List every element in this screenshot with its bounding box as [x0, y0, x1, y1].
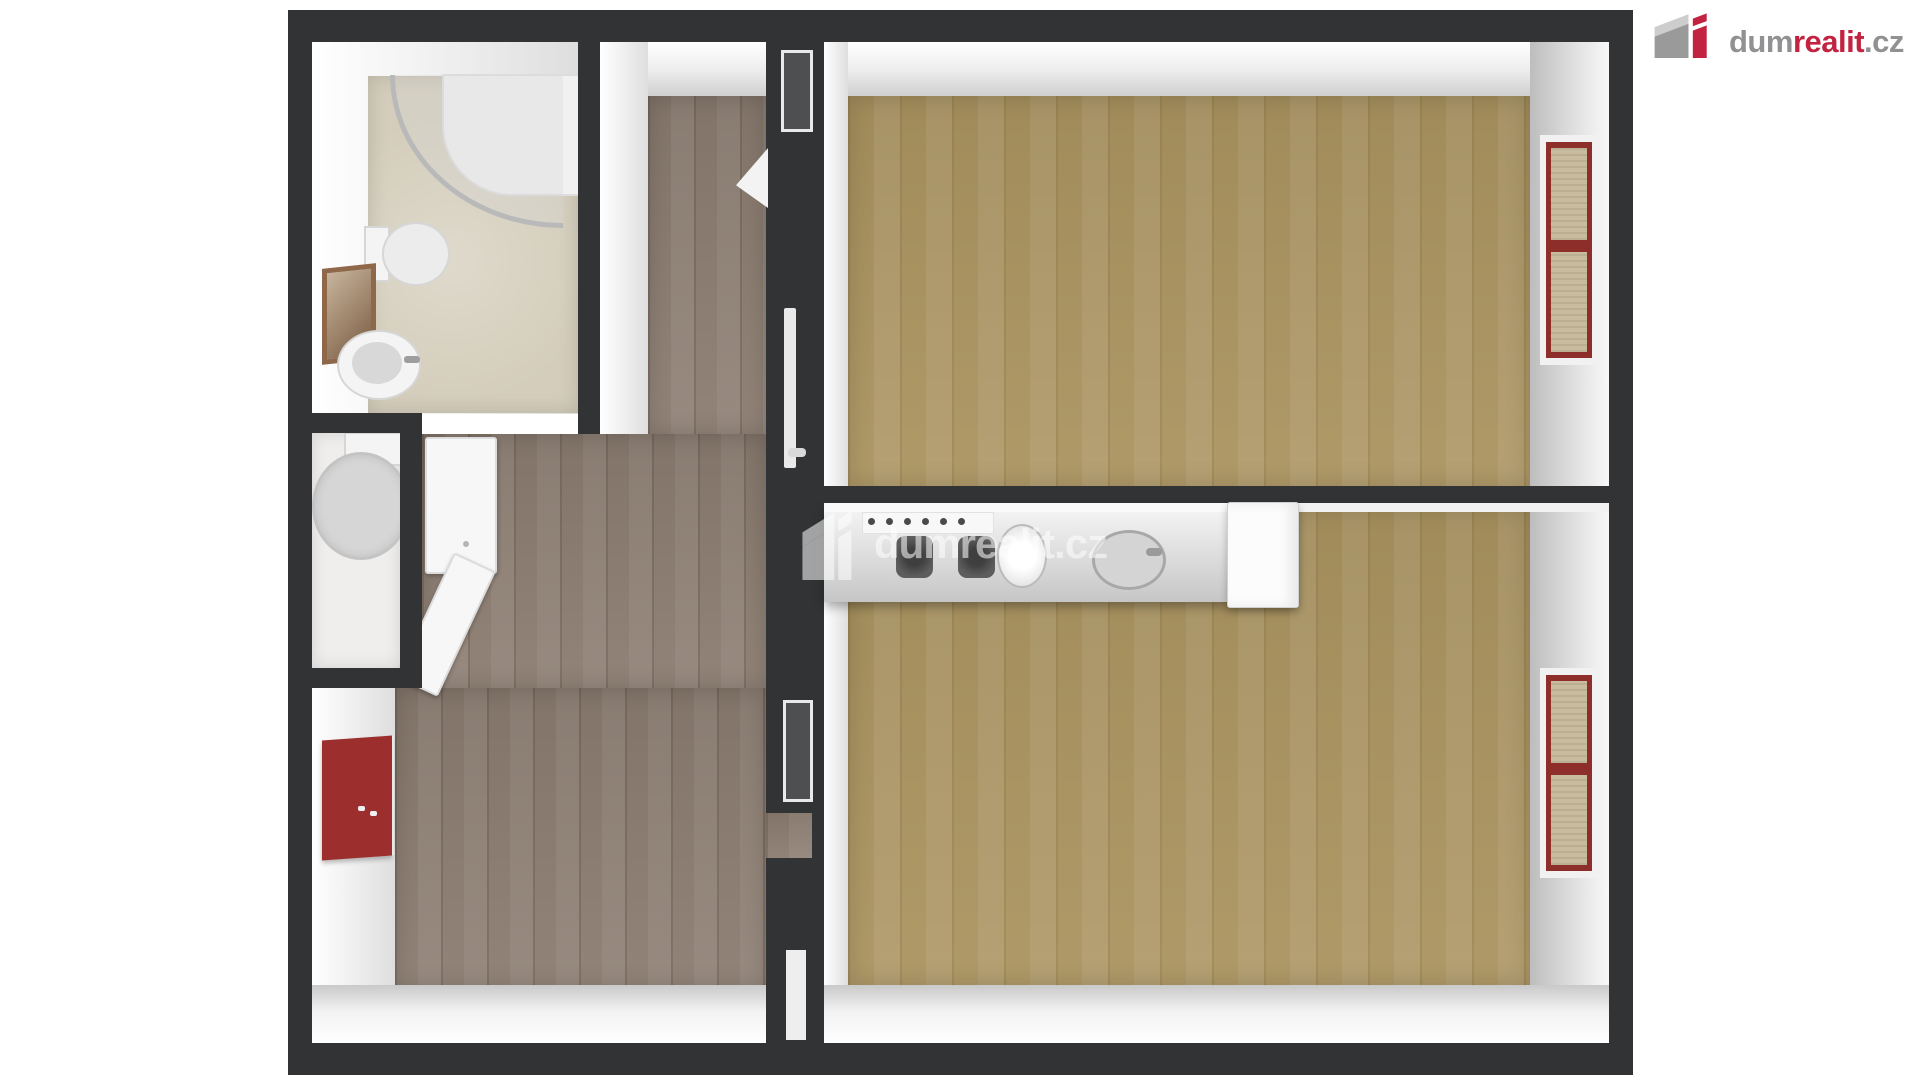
watermark-building-icon — [800, 506, 862, 580]
brand-text-cz: .cz — [1864, 24, 1904, 59]
doorway-threshold — [766, 813, 812, 858]
floorplan-page: dumrealit.cz dumrealit.cz — [0, 0, 1920, 1080]
window-pane — [1551, 681, 1587, 763]
wall-wc-south — [295, 668, 422, 688]
faucet-icon — [404, 356, 420, 363]
brand-logo[interactable]: dumrealit.cz — [1652, 8, 1912, 58]
hallway-floor-bottom — [395, 688, 766, 988]
brand-building-icon — [1652, 10, 1718, 58]
brand-text-realit: realit — [1793, 24, 1864, 59]
doorway-door-edge — [784, 308, 796, 468]
south-wall-face — [312, 985, 1609, 1043]
wall-baseboard — [1295, 503, 1609, 512]
fridge — [1227, 502, 1299, 608]
room-top-right-floor — [848, 96, 1530, 486]
red-radiator-panel — [322, 736, 392, 861]
radiator-valve-icon — [370, 811, 377, 816]
watermark-text: dumrealit.cz — [874, 520, 1107, 568]
doorway-slot-bottom — [783, 700, 813, 802]
room1-north-wall-face — [824, 42, 1609, 96]
hallway-west-wall-face — [600, 42, 648, 434]
brand-logo-text: dumrealit.cz — [1729, 26, 1904, 58]
doorway-slot-top — [781, 50, 813, 132]
wall-wc-east — [400, 413, 422, 677]
toilet-bowl — [382, 222, 450, 286]
doorway-door-edge — [786, 950, 806, 1040]
wall-top — [288, 10, 1633, 42]
wc-door — [425, 437, 497, 574]
room1-west-wall-face — [824, 42, 848, 486]
watermark: dumrealit.cz — [796, 502, 1136, 588]
floorplan-image[interactable]: dumrealit.cz — [0, 0, 1920, 1080]
wall-bottom — [288, 1043, 1633, 1075]
sink-basin — [352, 342, 402, 384]
wall-bathroom-east — [578, 10, 600, 434]
wall-right — [1609, 10, 1633, 1075]
wall-left — [288, 10, 312, 1075]
window-pane — [1551, 775, 1587, 865]
hallway-floor-top — [648, 96, 766, 434]
brand-text-dum: dum — [1729, 24, 1793, 59]
window-pane — [1551, 252, 1587, 352]
wc-toilet-bowl — [312, 452, 410, 560]
hallway-north-wall-face — [648, 42, 766, 96]
door-handle-icon — [788, 448, 806, 457]
door-knob-icon — [463, 541, 469, 547]
kitchen-faucet-icon — [1146, 548, 1162, 556]
window-pane — [1551, 148, 1587, 240]
radiator-valve-icon — [358, 806, 365, 811]
